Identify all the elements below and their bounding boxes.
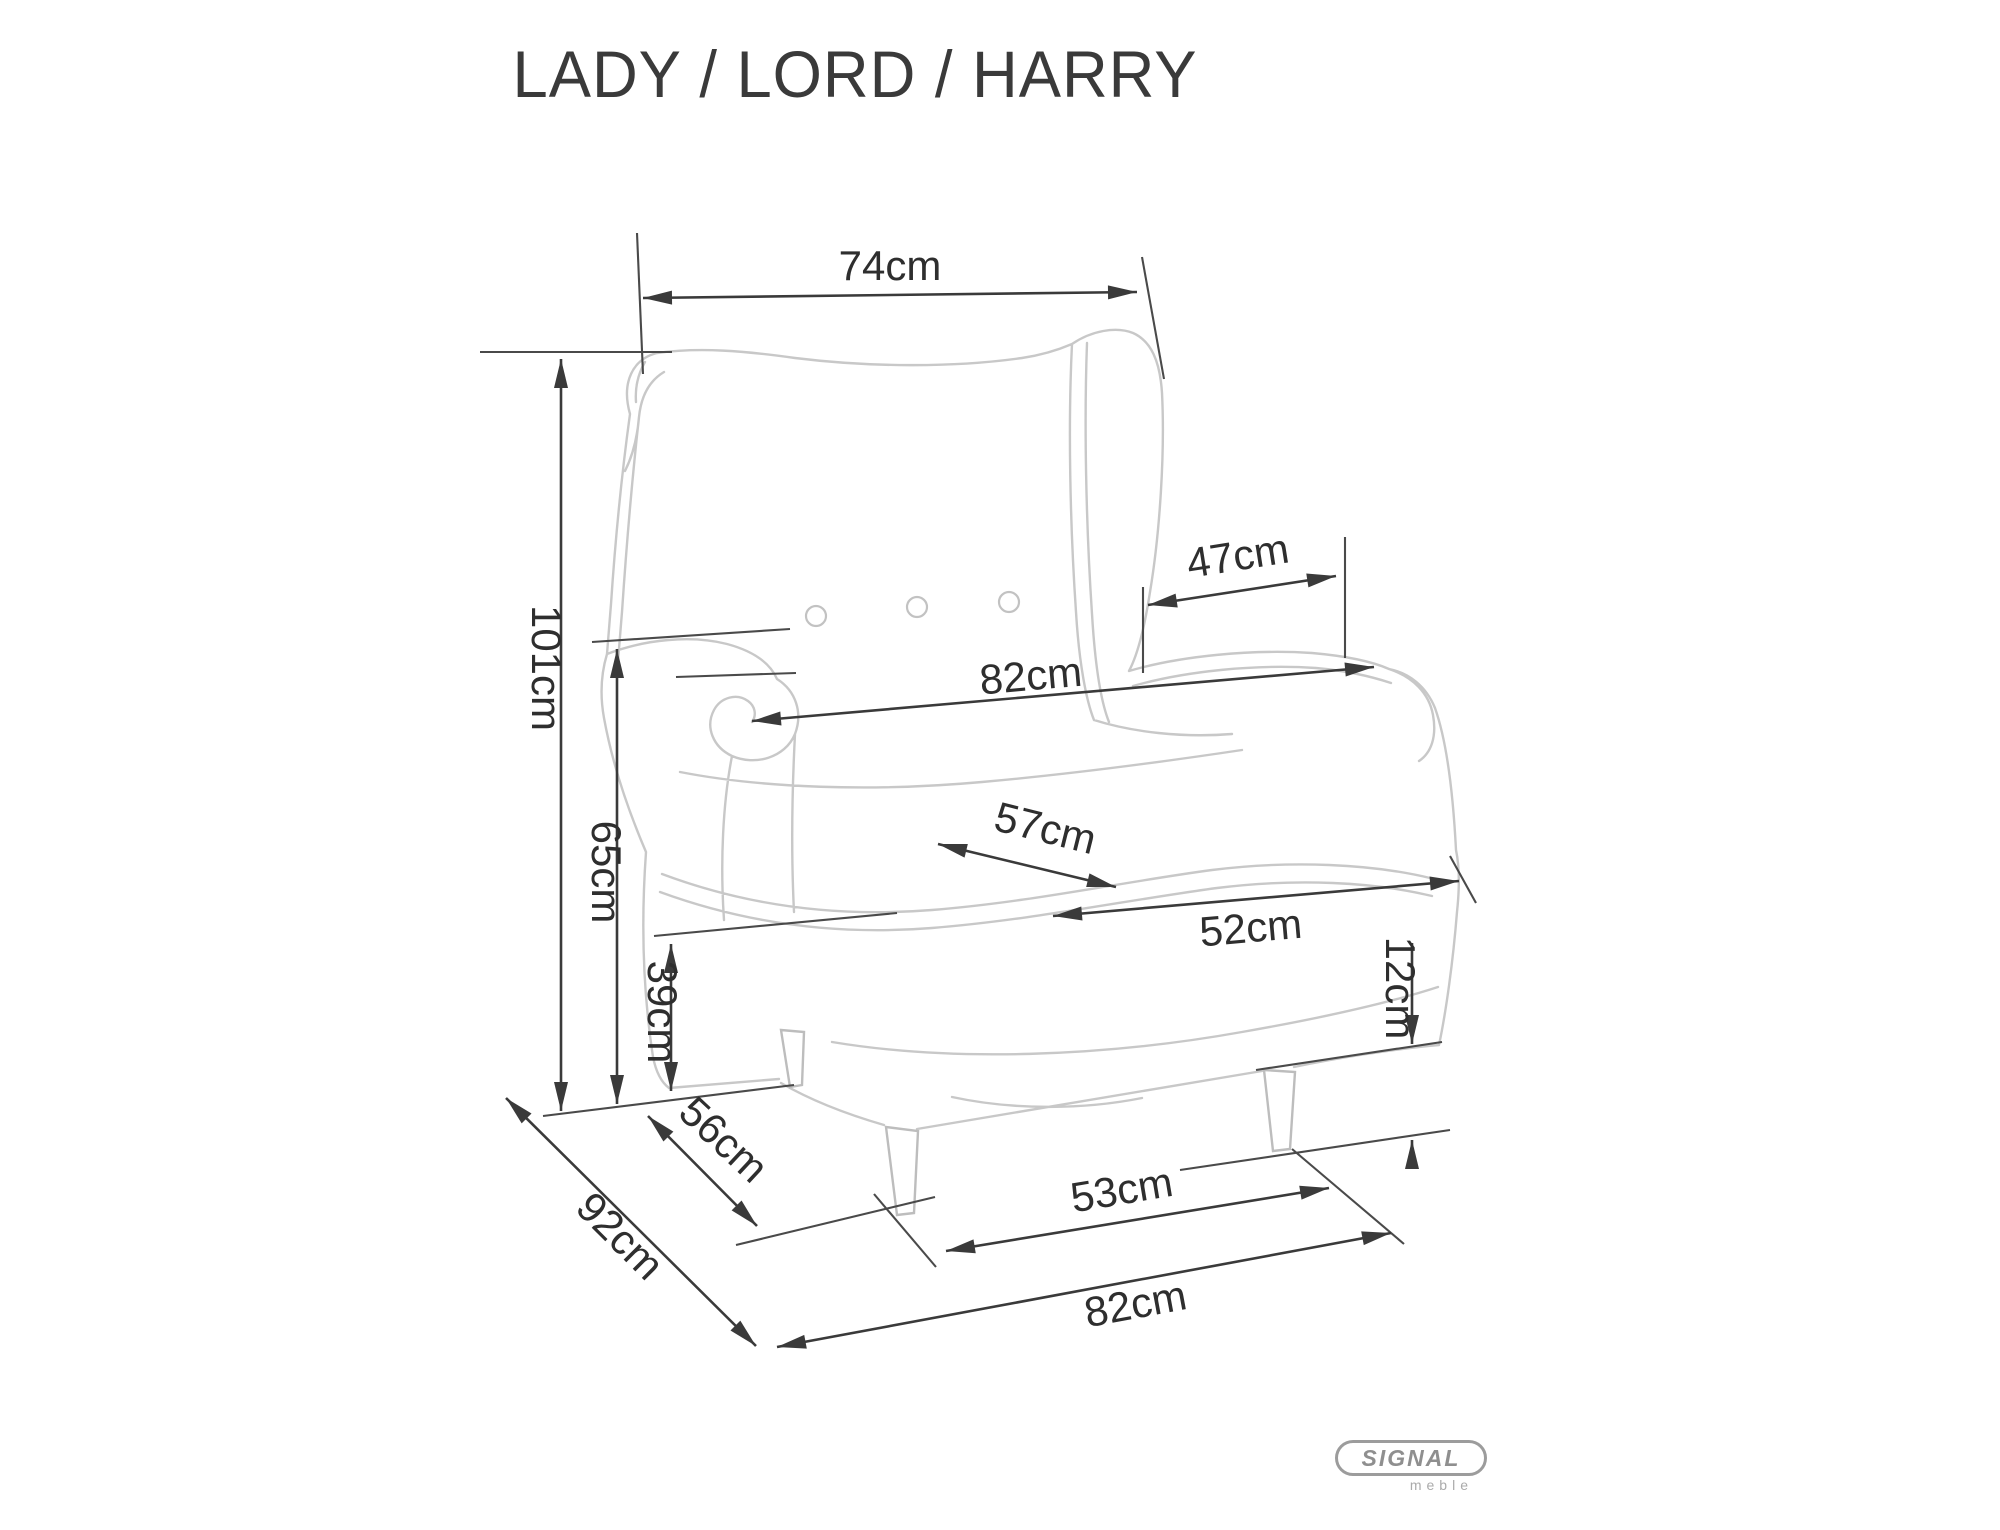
armchair-sketch: [602, 330, 1459, 1215]
ground-line-front: [1180, 1130, 1450, 1170]
dimension-56cm: 56cm: [648, 1087, 777, 1226]
dimension-drawing: 74cm 101cm 65cm 39cm 47cm 82cm 57cm: [0, 0, 2000, 1530]
dimension-53cm: 53cm: [946, 1158, 1329, 1251]
dimension-74cm: 74cm: [643, 242, 1137, 298]
ext-front-feet: [736, 1197, 935, 1245]
logo-frame: SIGNAL: [1335, 1440, 1487, 1476]
ext-seat-top: [654, 913, 897, 936]
extension-lines: [480, 233, 1476, 1267]
dim-label-101cm: 101cm: [523, 605, 570, 731]
chair-leg-rear-left: [781, 1030, 804, 1087]
tick-52-right: [1450, 856, 1476, 903]
dim-label-82cm-base: 82cm: [1081, 1271, 1191, 1336]
dimension-39cm: 39cm: [639, 944, 686, 1091]
tick-74-right: [1142, 257, 1164, 379]
dimension-65cm: 65cm: [583, 649, 630, 1104]
logo-sub-text: meble: [1335, 1477, 1487, 1493]
ground-line-left: [543, 1085, 794, 1116]
dim-label-53cm: 53cm: [1067, 1158, 1176, 1221]
chair-leg-front-right: [1264, 1070, 1295, 1151]
dim-label-56cm: 56cm: [670, 1087, 777, 1191]
dim-label-65cm: 65cm: [583, 821, 630, 924]
tufting-button: [907, 597, 927, 617]
dimension-82cm-base-width: 82cm: [777, 1233, 1391, 1347]
dimension-47cm: 47cm: [1148, 524, 1336, 605]
diagram-page: LADY / LORD / HARRY: [0, 0, 2000, 1530]
tufting-button: [999, 592, 1019, 612]
dimension-101cm: 101cm: [523, 359, 570, 1111]
ext-base-bottom: [1256, 1042, 1442, 1070]
ext-arm-left: [676, 673, 796, 677]
brand-logo: SIGNAL meble: [1335, 1440, 1487, 1493]
armchair-outline: [602, 330, 1459, 1129]
dim-line-74cm: [643, 292, 1137, 298]
dim-label-82cm-overall: 82cm: [978, 648, 1084, 704]
logo-brand-text: SIGNAL: [1362, 1445, 1461, 1472]
dim-label-39cm: 39cm: [639, 961, 686, 1064]
dim-line-47cm: [1148, 576, 1336, 605]
dimension-82cm-overall-width: 82cm: [752, 648, 1374, 721]
dim-label-74cm: 74cm: [839, 242, 942, 289]
dim-label-12cm: 12cm: [1377, 937, 1424, 1040]
dim-label-47cm: 47cm: [1183, 524, 1292, 586]
dim-label-57cm: 57cm: [990, 793, 1101, 863]
dimension-57cm: 57cm: [938, 793, 1116, 887]
dim-label-92cm: 92cm: [567, 1183, 673, 1289]
dim-label-52cm: 52cm: [1198, 900, 1304, 956]
tufting-button: [806, 606, 826, 626]
tick-53-82-right: [1292, 1149, 1404, 1244]
